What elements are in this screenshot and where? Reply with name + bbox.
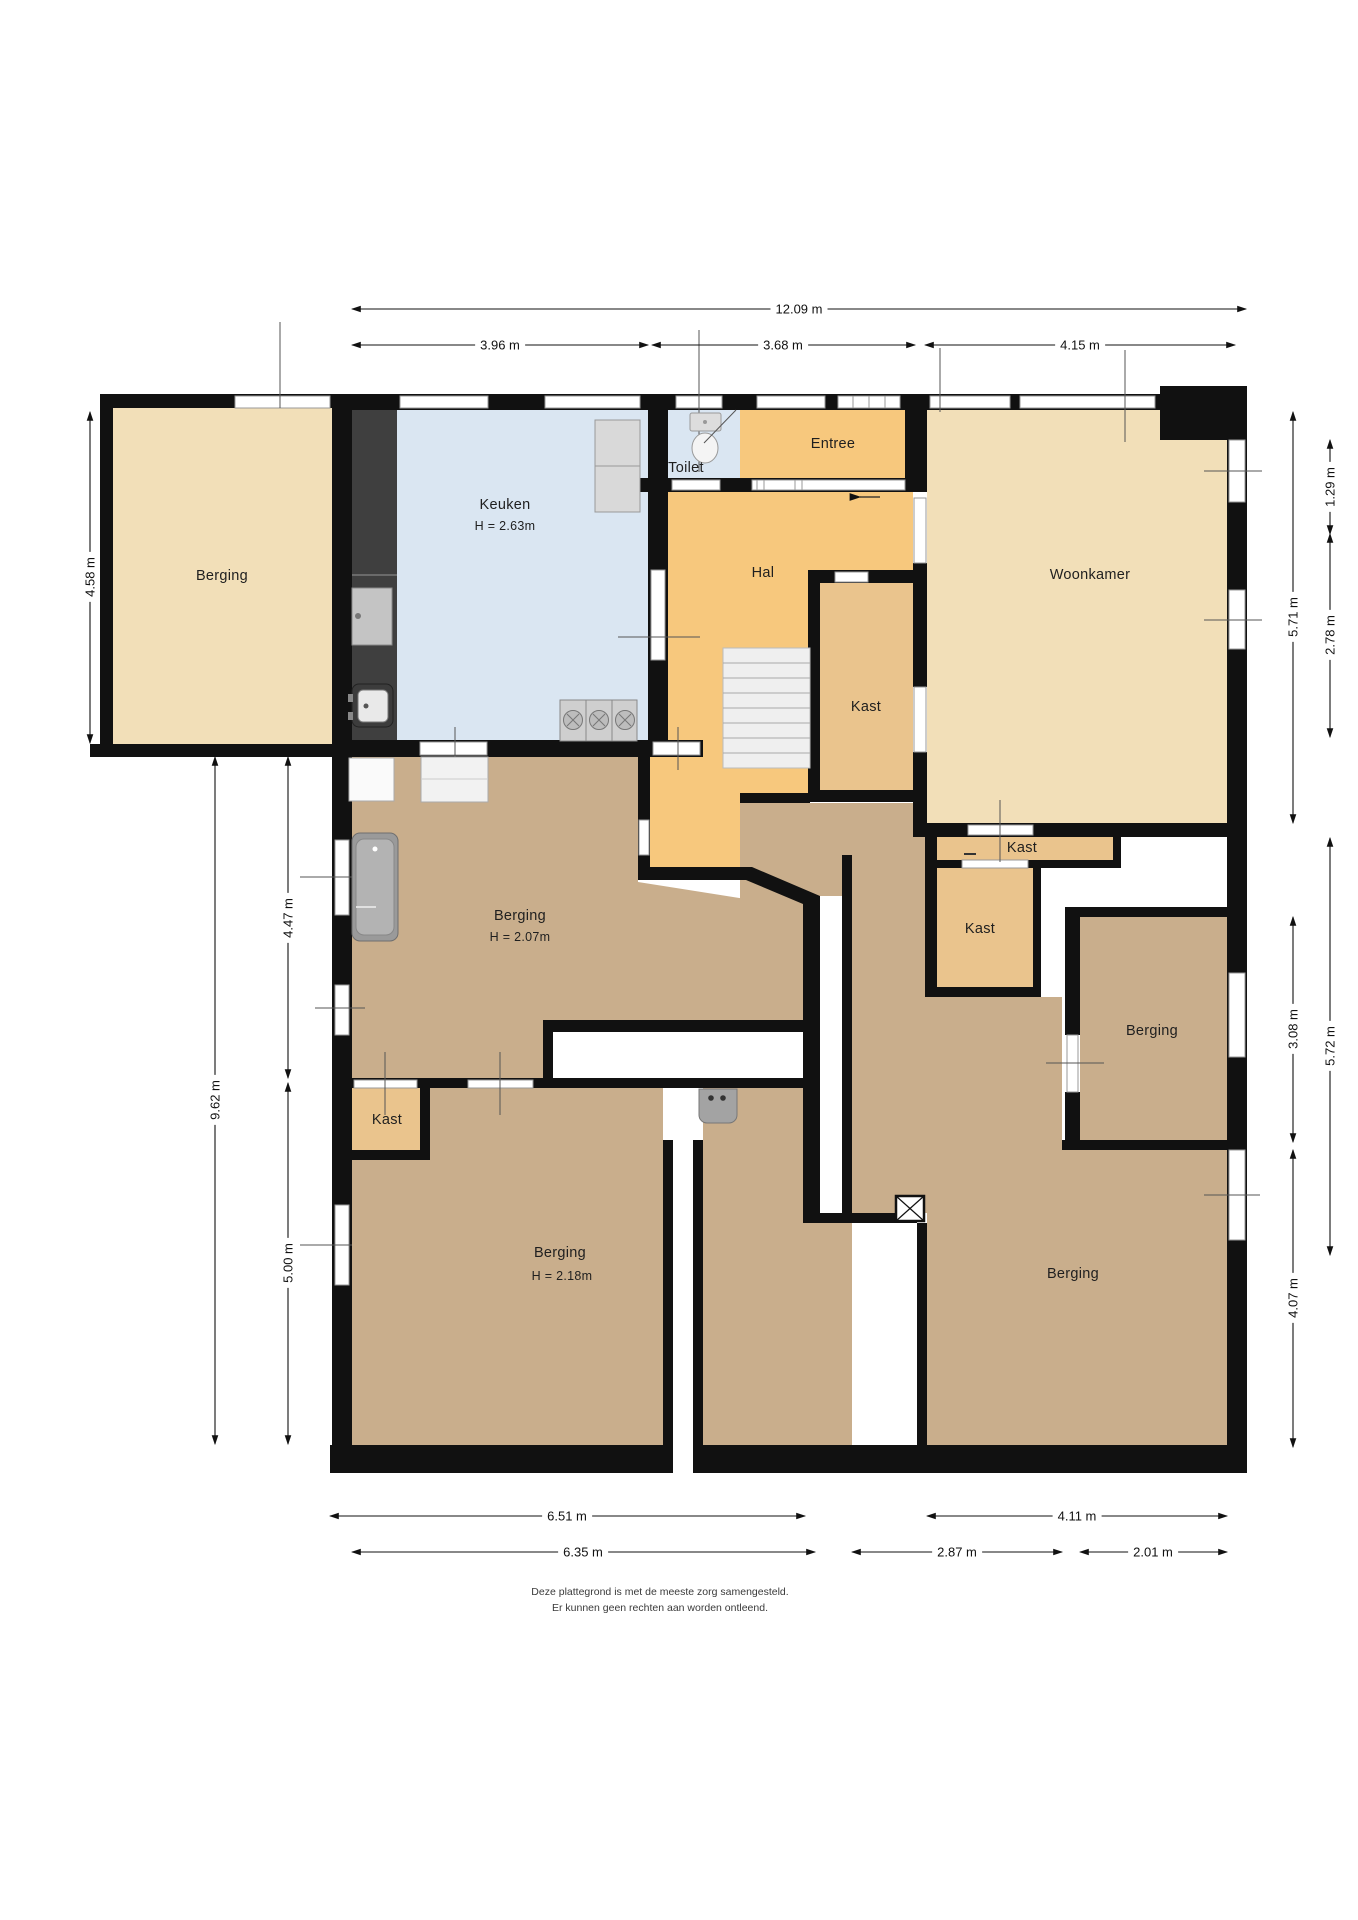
room-height-berging-bottom-left: H = 2.18m	[532, 1269, 593, 1283]
dim-left-3: 5.00 m	[280, 1238, 297, 1288]
room-label-woonkamer: Woonkamer	[1050, 567, 1131, 583]
dim-right-0: 5.71 m	[1285, 592, 1302, 642]
room-label-kast-mid: Kast	[965, 921, 995, 937]
disclaimer-line-1: Deze plattegrond is met de meeste zorg s…	[531, 1586, 788, 1598]
room-label-berging-annex: Berging	[196, 568, 248, 584]
dim-right-1: 1.29 m	[1322, 462, 1339, 512]
disclaimer-line-2: Er kunnen geen rechten aan worden ontlee…	[552, 1602, 768, 1614]
room-label-kast-strip: Kast	[1007, 840, 1037, 856]
washing-machine-icon	[699, 1089, 737, 1123]
dim-top-total: 12.09 m	[771, 301, 828, 318]
floorplan-drawing	[0, 0, 1358, 1920]
kitchen-cabinet-icon	[595, 420, 640, 512]
room-label-keuken: Keuken	[480, 497, 531, 513]
duct-icon	[896, 1196, 924, 1221]
dim-top-3: 4.15 m	[1055, 337, 1105, 354]
room-label-kast-center: Kast	[851, 699, 881, 715]
dim-bottom-0: 6.51 m	[542, 1508, 592, 1525]
room-height-berging-middle: H = 2.07m	[490, 930, 551, 944]
room-label-berging-right: Berging	[1126, 1023, 1178, 1039]
room-label-entree: Entree	[811, 436, 856, 452]
bathtub-icon	[352, 833, 398, 941]
floorplan-page: Berging Keuken H = 2.63m Toilet Entree H…	[0, 0, 1358, 1920]
dim-top-1: 3.96 m	[475, 337, 525, 354]
stairs	[723, 648, 810, 768]
dim-right-2: 2.78 m	[1322, 610, 1339, 660]
dim-top-2: 3.68 m	[758, 337, 808, 354]
room-label-toilet: Toilet	[668, 460, 704, 476]
dim-left-0: 4.58 m	[82, 552, 99, 602]
room-label-berging-middle: Berging	[494, 908, 546, 924]
dim-bottom-3: 4.11 m	[1053, 1508, 1102, 1525]
kitchen-sink-icon	[348, 684, 393, 727]
stove-icon	[560, 700, 637, 741]
room-height-keuken: H = 2.63m	[475, 519, 536, 533]
dim-right-5: 4.07 m	[1285, 1273, 1302, 1323]
dim-right-3: 5.72 m	[1322, 1021, 1339, 1071]
dim-left-2: 4.47 m	[280, 893, 297, 943]
room-label-berging-bottom-left: Berging	[534, 1245, 586, 1261]
room-label-hal: Hal	[752, 565, 775, 581]
dim-left-1: 9.62 m	[207, 1075, 224, 1125]
room-label-kast-bottom-left: Kast	[372, 1112, 402, 1128]
dim-right-4: 3.08 m	[1285, 1004, 1302, 1054]
room-label-berging-bottom-right: Berging	[1047, 1266, 1099, 1282]
dim-bottom-4: 2.01 m	[1128, 1544, 1178, 1561]
sink-unit-icon	[352, 588, 392, 645]
dim-bottom-1: 6.35 m	[558, 1544, 608, 1561]
dim-bottom-2: 2.87 m	[932, 1544, 982, 1561]
